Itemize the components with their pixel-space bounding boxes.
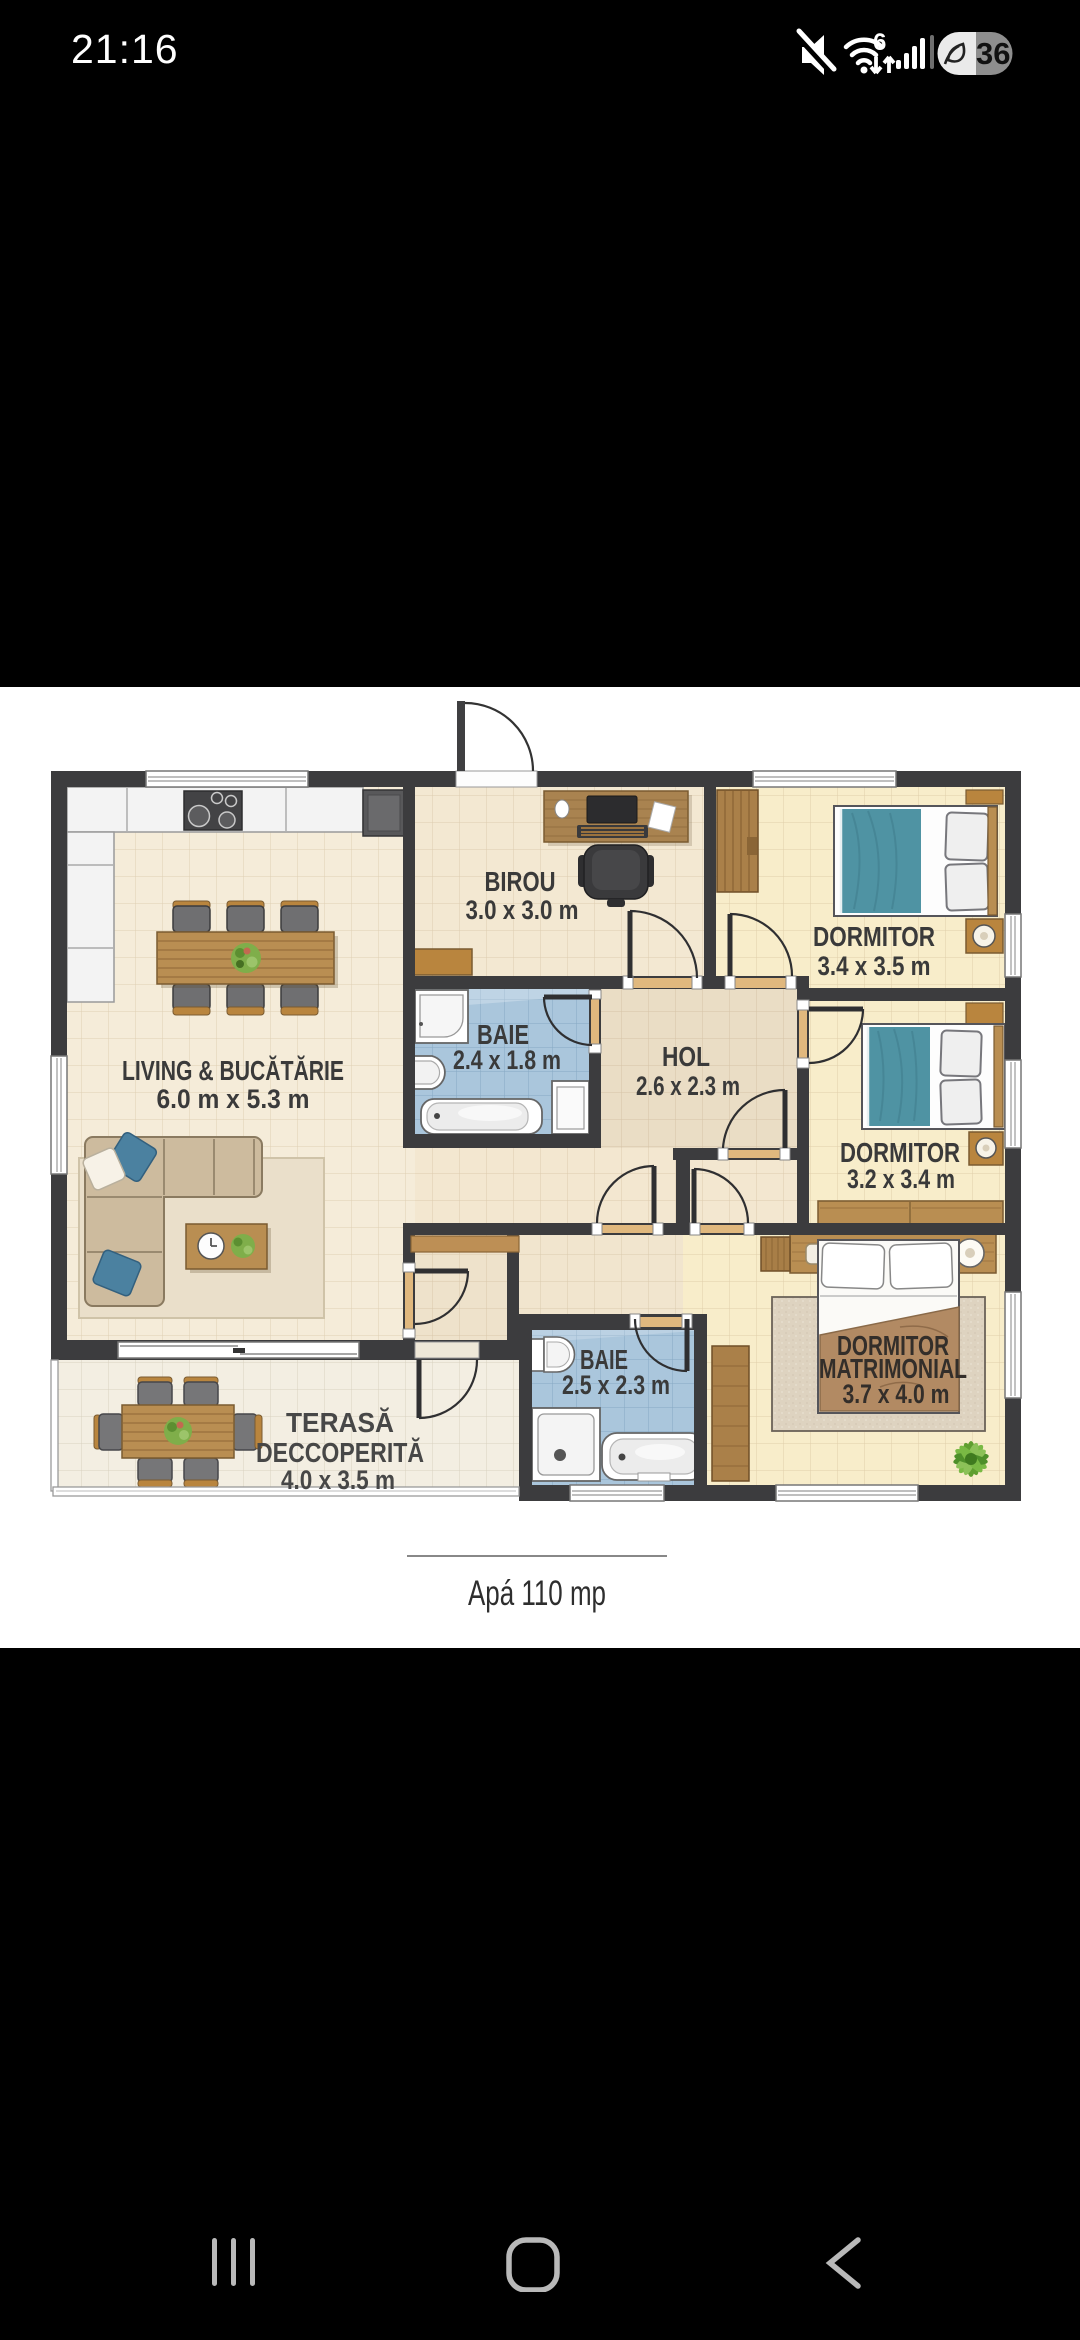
svg-text:36: 36: [976, 36, 1010, 71]
svg-text:2.4 x 1.8 m: 2.4 x 1.8 m: [453, 1045, 561, 1075]
svg-text:3.7 x 4.0 m: 3.7 x 4.0 m: [843, 1379, 950, 1409]
svg-text:3.4 x 3.5 m: 3.4 x 3.5 m: [818, 951, 931, 981]
svg-text:3.2 x 3.4 m: 3.2 x 3.4 m: [847, 1164, 955, 1194]
svg-text:HOL: HOL: [662, 1041, 710, 1072]
svg-text:6: 6: [873, 29, 886, 56]
svg-text:Apá 110 mp: Apá 110 mp: [468, 1574, 606, 1613]
svg-text:3.0 x 3.0 m: 3.0 x 3.0 m: [466, 895, 579, 925]
svg-text:DORMITOR: DORMITOR: [813, 921, 935, 952]
svg-text:LIVING & BUCĂTĂRIE: LIVING & BUCĂTĂRIE: [122, 1055, 344, 1086]
svg-text:BIROU: BIROU: [485, 866, 556, 897]
svg-text:2.5 x 2.3 m: 2.5 x 2.3 m: [562, 1370, 670, 1400]
svg-text:DECCOPERITĂ: DECCOPERITĂ: [256, 1437, 424, 1468]
svg-text:TERASĂ: TERASĂ: [286, 1407, 394, 1438]
svg-text:2.6 x 2.3 m: 2.6 x 2.3 m: [636, 1071, 740, 1101]
svg-text:6.0 m x 5.3 m: 6.0 m x 5.3 m: [157, 1084, 310, 1114]
svg-text:4.0 x 3.5 m: 4.0 x 3.5 m: [281, 1465, 395, 1495]
